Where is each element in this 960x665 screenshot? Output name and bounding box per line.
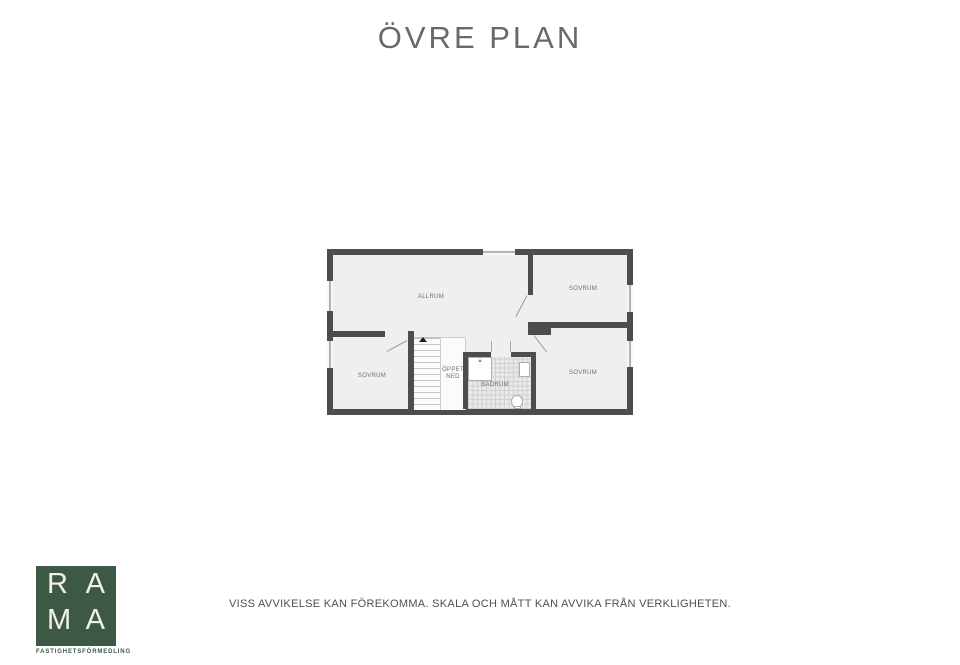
window-pane: [329, 281, 331, 311]
toilet-base: [514, 406, 521, 409]
window-pane: [629, 285, 631, 312]
wall-exterior-top: [327, 249, 633, 255]
wall-bathroom-right: [531, 352, 536, 409]
wall-block: [528, 322, 551, 335]
window-left-upper: [327, 281, 333, 311]
window-pane: [329, 341, 331, 368]
room-label-allrum: ALLRUM: [401, 294, 461, 301]
window-right-upper: [627, 285, 633, 312]
wall-allrum-sovrum: [528, 255, 533, 295]
logo-letter: R: [47, 566, 68, 602]
window-top: [483, 249, 515, 255]
bathroom-door-frame: [510, 341, 511, 352]
wall-exterior-right: [627, 249, 633, 415]
wall-bathroom-top-right: [511, 352, 536, 357]
window-pane: [629, 341, 631, 367]
room-label-sovrum-bottom-right: SOVRUM: [553, 370, 613, 377]
stair-direction-arrow-icon: [419, 337, 427, 342]
room-label-badrum: BADRUM: [465, 382, 525, 389]
wall-allrum-bottomleft-bedroom: [333, 331, 385, 337]
window-pane: [483, 251, 515, 253]
room-label-sovrum-top-right: SOVRUM: [553, 286, 613, 293]
window-left-lower: [327, 341, 333, 368]
bathroom-door-frame: [491, 341, 492, 352]
logo-tagline: FASTIGHETSFÖRMEDLING: [36, 649, 120, 655]
page-title: ÖVRE PLAN: [0, 20, 960, 56]
room-label-sovrum-bottom-left: SOVRUM: [342, 373, 402, 380]
wall-exterior-bottom: [327, 409, 633, 415]
shower-drain-icon: [478, 359, 482, 362]
window-right-lower: [627, 341, 633, 367]
sink: [519, 362, 530, 377]
logo-letter: A: [86, 566, 105, 602]
disclaimer-text: VISS AVVIKELSE KAN FÖREKOMMA. SKALA OCH …: [0, 598, 960, 610]
floorplan: ÖPPET NED ALLRUM SOVRUM SOVRUM SOVRUM BA…: [327, 249, 633, 415]
